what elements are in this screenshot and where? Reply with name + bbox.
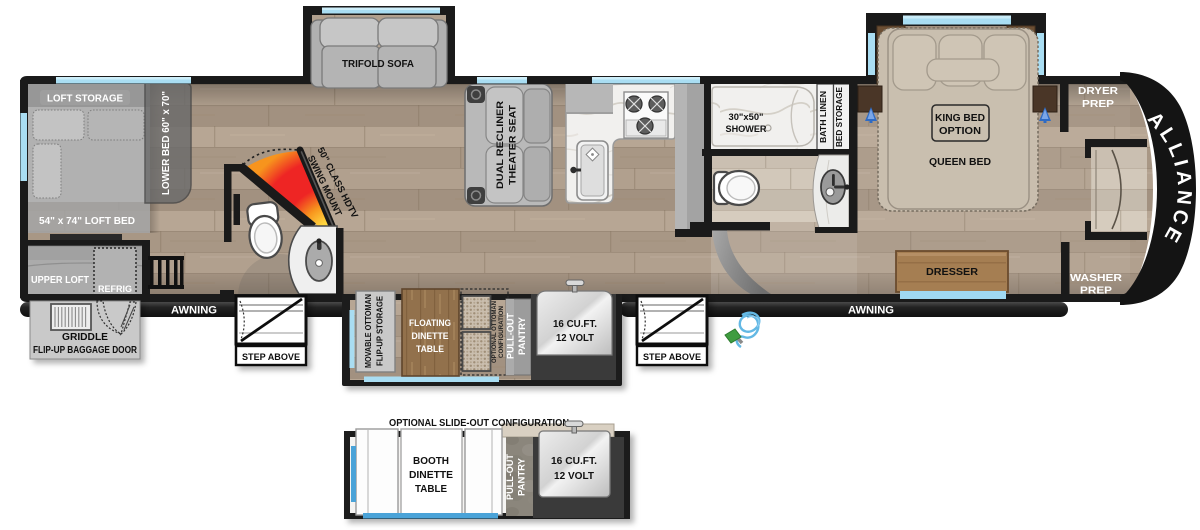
svg-text:54" x 74" LOFT BED: 54" x 74" LOFT BED [39, 215, 135, 227]
svg-text:DUAL RECLINER: DUAL RECLINER [495, 101, 506, 189]
svg-text:MOVABLE OTTOMAN: MOVABLE OTTOMAN [363, 294, 373, 368]
svg-text:STEP ABOVE: STEP ABOVE [643, 352, 701, 363]
svg-text:REFRIG: REFRIG [98, 284, 132, 295]
svg-text:STEP ABOVE: STEP ABOVE [242, 352, 300, 363]
svg-text:FLIP-UP STORAGE: FLIP-UP STORAGE [375, 296, 385, 366]
svg-text:OPTIONAL OTTOMAN: OPTIONAL OTTOMAN [491, 301, 498, 363]
svg-text:BOOTH: BOOTH [413, 456, 449, 467]
svg-text:FLOATING: FLOATING [409, 318, 451, 329]
svg-text:WASHER: WASHER [1070, 272, 1122, 284]
svg-text:PULL-OUT: PULL-OUT [506, 313, 517, 359]
svg-text:BED STORAGE: BED STORAGE [835, 86, 844, 147]
svg-text:THEATER SEAT: THEATER SEAT [508, 105, 519, 185]
svg-text:BATH LINEN: BATH LINEN [819, 91, 828, 143]
svg-text:FLIP-UP BAGGAGE DOOR: FLIP-UP BAGGAGE DOOR [33, 345, 138, 356]
svg-text:SHOWER: SHOWER [726, 124, 767, 135]
svg-text:PULL-OUT: PULL-OUT [505, 454, 516, 500]
svg-text:UPPER LOFT: UPPER LOFT [31, 274, 89, 286]
svg-text:DRESSER: DRESSER [926, 266, 978, 278]
svg-text:DRYER: DRYER [1078, 85, 1118, 97]
svg-text:PANTRY: PANTRY [517, 316, 528, 355]
svg-text:PANTRY: PANTRY [517, 457, 528, 496]
svg-text:AWNING: AWNING [171, 305, 217, 317]
svg-text:OPTIONAL SLIDE-OUT CONFIGURATI: OPTIONAL SLIDE-OUT CONFIGURATION [389, 417, 569, 429]
svg-text:12 VOLT: 12 VOLT [556, 333, 594, 344]
svg-text:LOWER BED 60" x 70": LOWER BED 60" x 70" [160, 91, 172, 195]
svg-text:QUEEN BED: QUEEN BED [929, 156, 991, 168]
svg-text:CONFIGURATION: CONFIGURATION [498, 305, 505, 358]
svg-text:TABLE: TABLE [416, 344, 444, 355]
svg-text:DINETTE: DINETTE [409, 470, 453, 481]
svg-text:30"x50": 30"x50" [729, 112, 764, 123]
svg-text:16 CU.FT.: 16 CU.FT. [551, 455, 597, 467]
svg-text:12 VOLT: 12 VOLT [554, 470, 595, 482]
svg-text:16 CU.FT.: 16 CU.FT. [553, 319, 597, 330]
svg-text:PREP: PREP [1080, 285, 1112, 297]
svg-text:GRIDDLE: GRIDDLE [62, 332, 108, 343]
svg-text:KING BED: KING BED [935, 112, 985, 124]
svg-text:LOFT STORAGE: LOFT STORAGE [47, 93, 123, 105]
svg-text:DINETTE: DINETTE [412, 331, 449, 342]
svg-text:TABLE: TABLE [415, 484, 447, 495]
svg-text:AWNING: AWNING [848, 305, 894, 317]
svg-text:PREP: PREP [1082, 98, 1114, 110]
svg-text:OPTION: OPTION [939, 125, 981, 137]
svg-text:TRIFOLD SOFA: TRIFOLD SOFA [342, 58, 414, 70]
